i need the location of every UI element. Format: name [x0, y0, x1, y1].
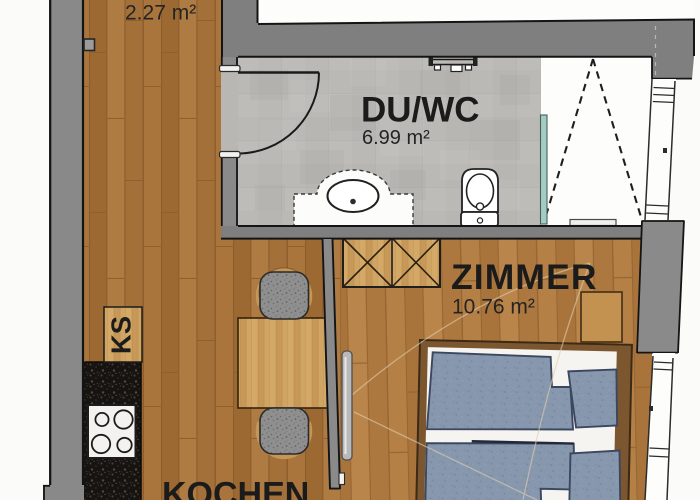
svg-text:10.76 m²: 10.76 m²: [452, 296, 535, 319]
svg-text:ZIMMER: ZIMMER: [451, 257, 598, 297]
svg-text:KS: KS: [105, 316, 136, 354]
svg-text:DU/WC: DU/WC: [361, 91, 480, 130]
svg-text:2.27 m²: 2.27 m²: [125, 2, 196, 25]
svg-text:KOCHEN: KOCHEN: [162, 476, 309, 500]
svg-text:6.99 m²: 6.99 m²: [362, 127, 430, 149]
